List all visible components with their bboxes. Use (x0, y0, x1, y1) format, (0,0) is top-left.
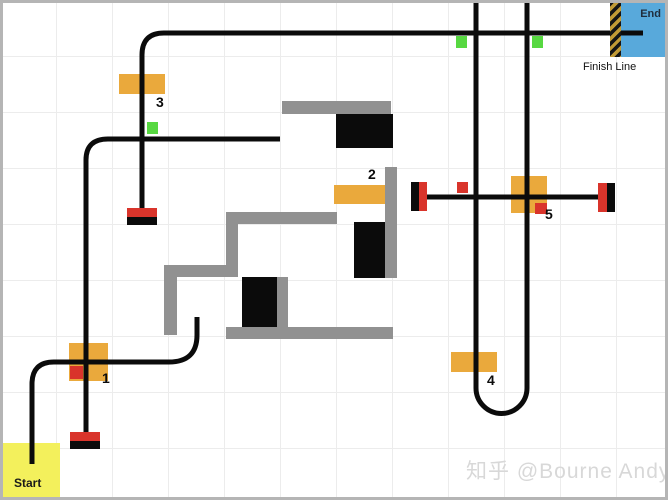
checkpoint-2-label: 2 (368, 167, 376, 181)
checkpoint-4-label: 4 (487, 373, 495, 387)
finish-line-hatch (610, 2, 621, 57)
red-square-marker-1 (70, 366, 83, 379)
green-square-marker-2 (456, 36, 467, 48)
course-map: Start End (0, 0, 668, 500)
marker-black-half (127, 217, 157, 226)
marker-black-half (70, 441, 100, 450)
watermark: 知乎 @Bourne Andy (466, 455, 668, 485)
cap-black-half (607, 183, 616, 212)
track-path-start-hook (32, 317, 197, 464)
checkpoint-1-label: 1 (102, 371, 110, 385)
green-square-marker-1 (147, 122, 158, 134)
track-path-u-turn (476, 0, 527, 414)
track-end-marker-1 (70, 432, 100, 449)
marker-red-half (70, 432, 100, 441)
red-square-marker-2 (457, 182, 468, 193)
track-path-top-to-finish (142, 33, 643, 211)
track-paths (0, 0, 668, 500)
track-path-checkpoint1-branch (86, 139, 280, 437)
cap-red-half (598, 183, 607, 212)
crossbar-left-cap (411, 182, 427, 211)
checkpoint-5-label: 5 (545, 207, 553, 221)
marker-red-half (127, 208, 157, 217)
finish-line-label: Finish Line (583, 61, 636, 73)
green-square-marker-3 (532, 36, 543, 48)
cap-black-half (411, 182, 419, 211)
cap-red-half (419, 182, 427, 211)
checkpoint-3-label: 3 (156, 95, 164, 109)
track-end-marker-3 (127, 208, 157, 225)
crossbar-right-cap (598, 183, 615, 212)
